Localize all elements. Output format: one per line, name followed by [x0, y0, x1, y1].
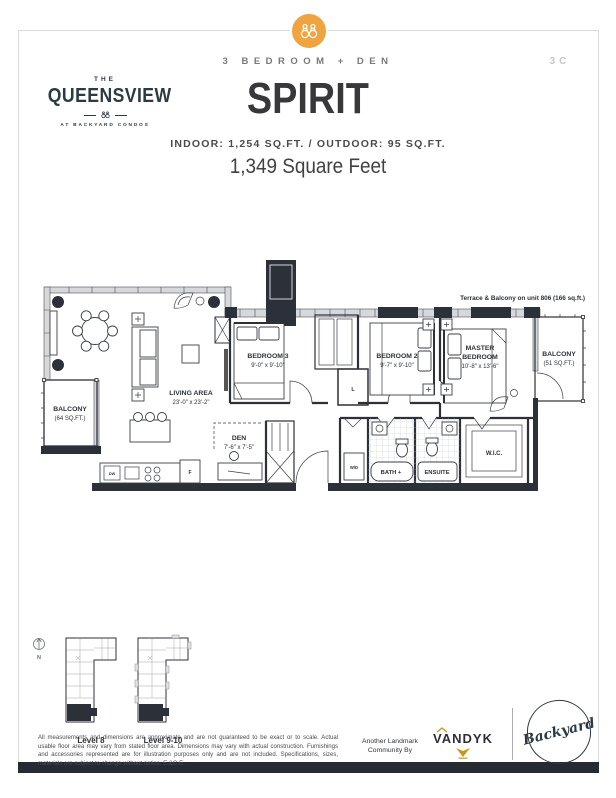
elevator-shaft — [266, 260, 296, 326]
bedroom3-label: BEDROOM 3 — [247, 353, 288, 360]
bath-label: BATH + — [381, 470, 402, 476]
living-label: LIVING AREA — [169, 390, 213, 397]
dining-table — [73, 311, 118, 351]
bedroom2-label: BEDROOM 2 — [376, 353, 417, 360]
master-dims: 10'-8" x 13'-6" — [462, 364, 499, 370]
community-line1: Another Landmark — [350, 737, 430, 746]
wicker-chairs — [174, 293, 204, 308]
ensuite: ENSUITE — [415, 418, 460, 483]
column — [208, 296, 220, 308]
brand-tagline: AT BACKYARD CONDOS — [40, 123, 170, 128]
linen-label: L — [351, 387, 355, 393]
unit-code: 3C — [530, 56, 590, 67]
ensuite-label: ENSUITE — [424, 470, 449, 476]
brand-divider — [40, 111, 170, 119]
washer-dryer-label: W/D — [350, 465, 358, 470]
unit-type-label: 3 BEDROOM + DEN — [168, 56, 448, 67]
total-area: 1,349 Square Feet — [168, 155, 448, 179]
den-dims: 7'-6" x 7'-5" — [224, 445, 254, 451]
keyplan-level8 — [62, 634, 120, 726]
sofa — [132, 313, 158, 401]
unit-name: SPIRIT — [168, 74, 448, 124]
brand-badge — [290, 12, 328, 50]
brand-name: QUEENSVIEW — [48, 85, 162, 108]
brand-the: THE — [40, 76, 170, 83]
bedroom-2: BEDROOM 2 9'-7" x 9'-10" — [370, 319, 434, 395]
master-label-2: BEDROOM — [462, 354, 498, 361]
vandyk-logo: VANDYK — [428, 731, 498, 764]
den-label: DEN — [232, 435, 246, 442]
balcony-right-area: (51 SQ.FT.) — [543, 361, 574, 367]
entry-closet — [266, 421, 294, 483]
balcony-right: BALCONY (51 SQ.FT.) — [535, 314, 586, 403]
balcony-left-area: (64 SQ.FT.) — [54, 416, 85, 422]
balcony-right-label: BALCONY — [542, 351, 576, 358]
bedroom2-dims: 9'-7" x 9'-10" — [380, 363, 414, 369]
terrace-note: Terrace & Balcony on unit 806 (166 sq.ft… — [460, 295, 585, 302]
bench — [50, 311, 57, 355]
side-table — [182, 345, 199, 363]
kitchen-island — [130, 413, 170, 443]
column — [52, 296, 64, 308]
media-unit — [224, 349, 228, 391]
vandyk-fan-icon — [428, 747, 498, 759]
column — [52, 359, 64, 371]
fridge-label: F — [188, 470, 191, 476]
dash-right — [115, 115, 127, 116]
binoculars-small-icon — [100, 111, 111, 119]
closet-block: L — [315, 315, 368, 405]
floor-plan: BALCONY (64 SQ.FT.) BALCONY (51 SQ.FT.) — [28, 253, 588, 508]
floorplan-sheet: THE QUEENSVIEW AT BACKYARD CONDOS 3 BEDR… — [0, 0, 616, 798]
vandyk-wordmark: VANDYK — [428, 731, 498, 746]
area-breakdown: INDOOR: 1,254 SQ.FT. / OUTDOOR: 95 SQ.FT… — [168, 138, 448, 150]
bedroom-3: BEDROOM 3 9'-0" x 9'-10" — [234, 323, 289, 399]
north-label: N — [37, 655, 41, 661]
bedroom3-dims: 9'-0" x 9'-10" — [251, 363, 285, 369]
balcony-left: BALCONY (64 SQ.FT.) — [41, 379, 98, 447]
walk-in-closet: W.I.C. — [466, 425, 522, 477]
vent-shaft — [215, 317, 230, 343]
backyard-wordmark: Backyard — [521, 715, 596, 748]
brand-logo: THE QUEENSVIEW AT BACKYARD CONDOS — [40, 76, 170, 128]
master-bedroom: MASTER BEDROOM 10'-8" x 13'-6" — [441, 319, 518, 411]
living-area: DW F LIVING AREA 23'-0" x 23'-2" — [50, 293, 230, 483]
footer-divider — [512, 708, 513, 760]
living-dims: 23'-0" x 23'-2" — [173, 400, 210, 406]
binoculars-icon — [299, 22, 319, 40]
dash-left — [84, 115, 96, 116]
kitchen-counter: DW F — [100, 460, 200, 483]
community-by: Another Landmark Community By — [350, 737, 430, 755]
den: DEN 7'-6" x 7'-5" — [214, 423, 262, 480]
master-label-1: MASTER — [466, 345, 495, 352]
bed — [234, 323, 284, 399]
community-line2: Community By — [350, 746, 430, 755]
disclaimer-text: All measurements and dimensions are appr… — [38, 734, 338, 769]
north-arrow: N — [30, 636, 48, 662]
vandyk-accent — [436, 727, 448, 733]
balcony-left-label: BALCONY — [53, 406, 87, 413]
keyplan-level9-10 — [134, 634, 192, 726]
dishwasher-label: DW — [109, 472, 116, 476]
bath: W/D BATH + — [344, 418, 415, 483]
wic-label: W.I.C. — [486, 451, 503, 457]
